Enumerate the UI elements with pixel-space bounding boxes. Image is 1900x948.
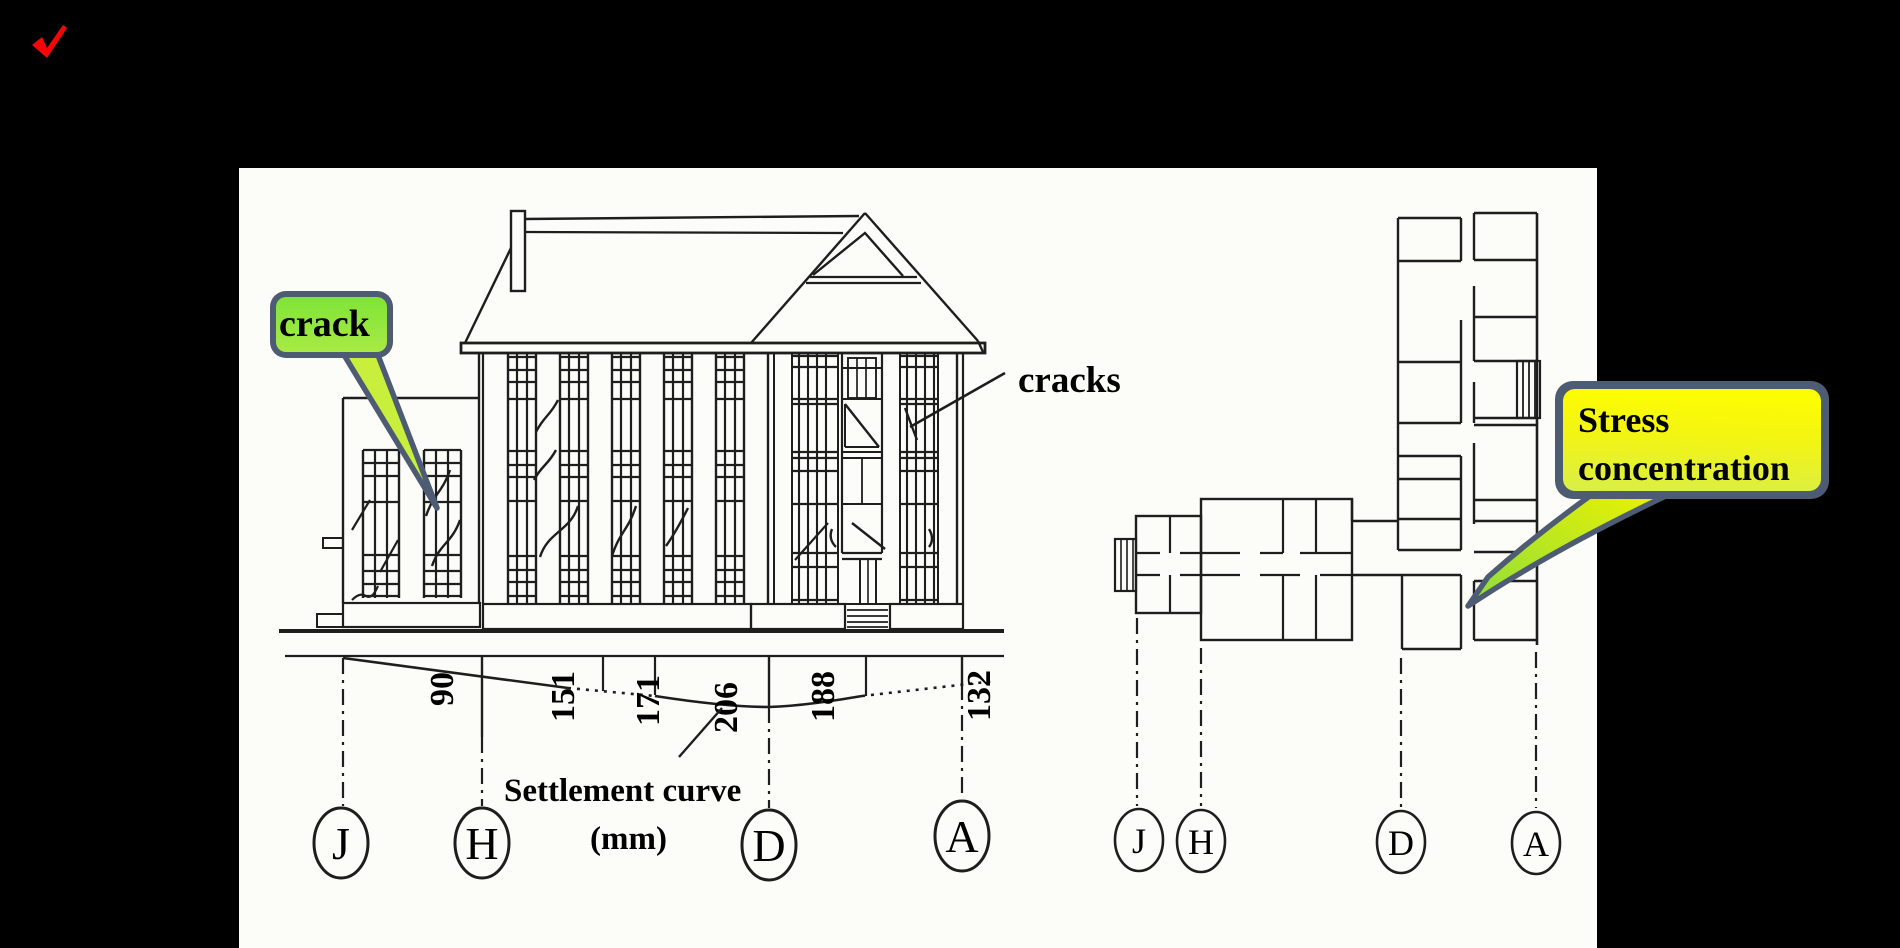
svg-text:151: 151 [545,671,582,722]
svg-text:cracks: cracks [1018,360,1121,401]
svg-text:171: 171 [630,675,667,726]
svg-text:D: D [752,820,785,871]
svg-text:Settlement curve: Settlement curve [504,773,741,809]
svg-text:H: H [1188,822,1214,862]
svg-text:188: 188 [805,671,842,722]
svg-text:Stress: Stress [1578,400,1669,440]
svg-text:D: D [1388,823,1414,863]
svg-text:132: 132 [961,670,998,721]
svg-text:(mm): (mm) [590,821,667,857]
svg-text:concentration: concentration [1578,448,1790,488]
svg-text:206: 206 [708,682,745,733]
svg-text:crack: crack [279,303,371,345]
svg-text:A: A [945,811,978,862]
svg-text:J: J [1132,821,1146,861]
svg-text:H: H [465,818,498,869]
svg-text:90: 90 [424,672,461,706]
svg-text:J: J [332,818,350,869]
svg-text:A: A [1523,824,1549,864]
